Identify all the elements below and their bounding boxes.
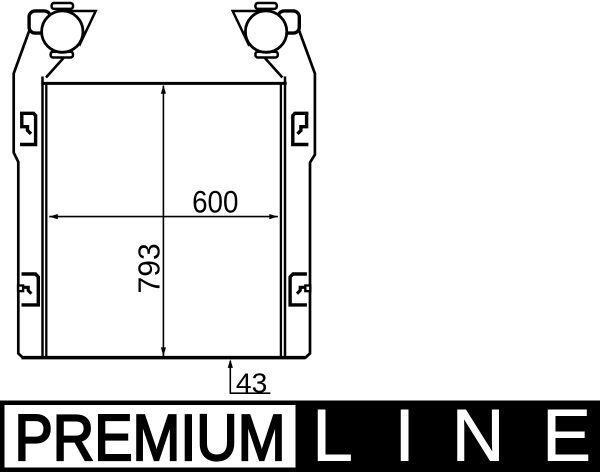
svg-text:793: 793 — [134, 243, 167, 293]
svg-text:PREMIUM: PREMIUM — [15, 402, 286, 472]
svg-text:43: 43 — [236, 366, 267, 398]
svg-text:E: E — [542, 395, 591, 472]
svg-text:I: I — [395, 395, 415, 472]
svg-text:N: N — [452, 395, 505, 472]
svg-text:L: L — [312, 395, 353, 472]
svg-text:600: 600 — [192, 185, 238, 220]
